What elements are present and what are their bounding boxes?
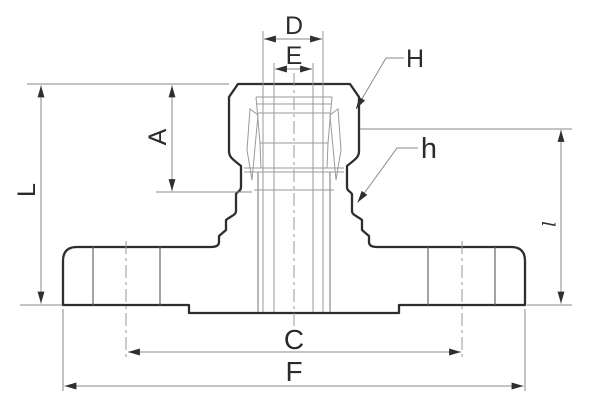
technical-drawing: D E H A L h l C F — [0, 0, 600, 406]
label-h: h — [421, 133, 437, 165]
label-C: C — [284, 324, 304, 355]
part-body — [63, 31, 525, 358]
label-L: L — [13, 183, 41, 197]
label-l: l — [540, 221, 561, 227]
label-F: F — [285, 356, 302, 387]
leader-H — [356, 58, 404, 109]
leader-h — [358, 148, 419, 203]
label-H: H — [406, 45, 424, 73]
drawing-canvas: D E H A L h l C F — [0, 0, 600, 406]
label-E: E — [286, 42, 303, 70]
label-D: D — [285, 12, 303, 40]
label-A: A — [144, 128, 172, 145]
